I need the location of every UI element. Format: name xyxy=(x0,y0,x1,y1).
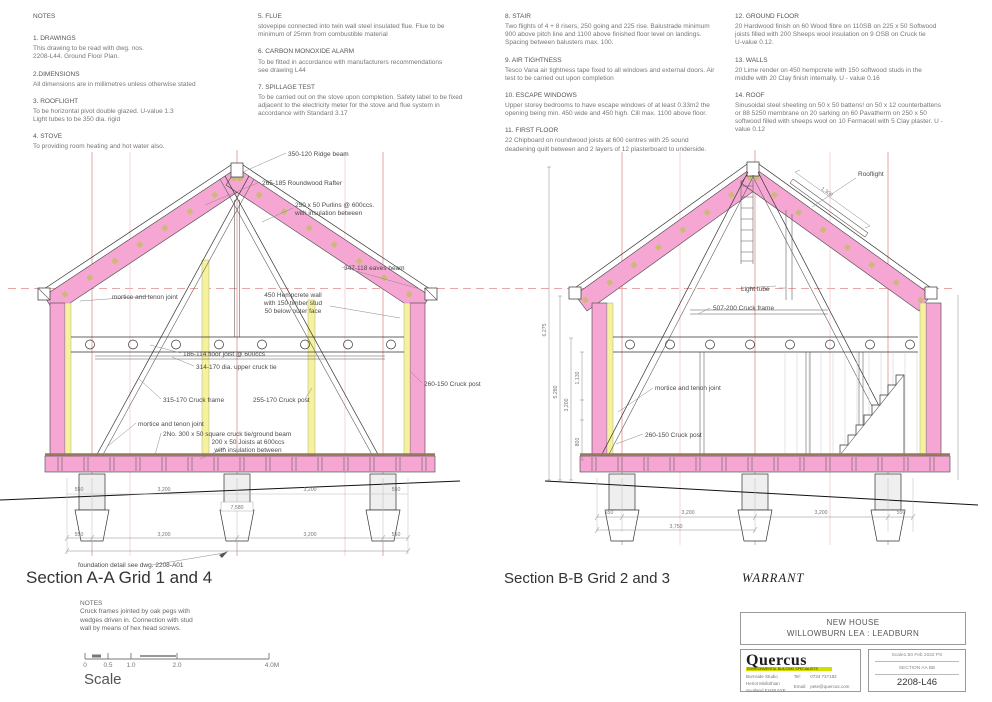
dim-a: 3,200 xyxy=(158,532,171,538)
wall-right-b xyxy=(926,303,941,465)
dim-a: 3,200 xyxy=(304,487,317,493)
roof-slope-right xyxy=(226,168,430,313)
drawing-number: 2208-L46 xyxy=(869,675,965,691)
roof-slope-left-b xyxy=(575,167,765,311)
roof-sheeting-right-b xyxy=(756,162,934,290)
ridge-beam-b xyxy=(747,162,759,176)
label-joists-1: 200 x 50 Joists at 600ccs xyxy=(212,439,286,446)
project-title-box: NEW HOUSE WILLOWBURN LEA : LEADBURN xyxy=(740,612,966,645)
label-joists-2: with insulation between xyxy=(213,447,282,454)
label-ridge-beam: 350-120 Ridge beam xyxy=(288,151,349,158)
section-a-title: Section A-A Grid 1 and 4 xyxy=(26,568,212,588)
vdim-b: 5,280 xyxy=(553,385,559,398)
label-purlins-2: with insulation between xyxy=(294,210,363,217)
label-hempcrete-3: 50 below outer face xyxy=(265,308,322,315)
dim-a: 550 xyxy=(75,487,84,493)
sections-drawing: 350-120 Ridge beam 265-185 Roundwood Raf… xyxy=(0,0,992,702)
project-name: NEW HOUSE xyxy=(827,618,880,629)
wall-left xyxy=(50,303,65,465)
drawing-info-box: Scale1:50 Feb 2022 PS SECTION AA BB 2208… xyxy=(868,649,966,692)
company-address: Burnside Studio Heriot Midlothian Scotla… xyxy=(746,674,786,694)
drawing-scale-date: Scale1:50 Feb 2022 PS xyxy=(869,650,965,661)
wall-stud-left-b xyxy=(607,303,613,465)
construction-notes-title: NOTES xyxy=(80,600,250,608)
label-floor-joist: 186-114 floor joist @ 600ccs xyxy=(183,351,266,358)
scale-tick: 0 xyxy=(83,662,87,669)
dim-b: 3,200 xyxy=(815,510,828,516)
warrant-stamp: WARRANT xyxy=(742,571,804,586)
dim-a: 3,200 xyxy=(158,487,171,493)
dim-a-mid: 7,580 xyxy=(231,505,244,511)
scale-tick: 2.0 xyxy=(172,662,181,669)
label-purlins-1: 250 x 50 Purlins @ 600ccs. xyxy=(295,202,374,209)
dim-a: 3,200 xyxy=(304,532,317,538)
project-address: WILLOWBURN LEA : LEADBURN xyxy=(787,629,919,640)
vdim-b: 3,200 xyxy=(564,398,570,411)
label-mortice-lower: mortice and tenon joint xyxy=(138,421,204,428)
ground-floor-a xyxy=(45,455,435,473)
company-contact: Tel:0734 737182 Email:pete@quercus.com xyxy=(794,674,850,694)
wall-right xyxy=(410,303,425,465)
dim-b: 3,200 xyxy=(682,510,695,516)
light-tube xyxy=(786,210,792,300)
wall-stud-right-b xyxy=(920,303,926,465)
construction-notes: NOTES Cruck frames jointed by oak pegs w… xyxy=(80,600,250,634)
eaves-beam-right-b xyxy=(925,287,937,299)
vdim-b: 1,130 xyxy=(575,371,581,384)
vdim-b: 800 xyxy=(575,438,581,447)
label-mortice-b: mortice and tenon joint xyxy=(655,385,721,392)
dim-a: 550 xyxy=(392,487,401,493)
label-upper-cruck-tie: 314-170 dia. upper cruck tie xyxy=(196,364,277,371)
label-cruck-post: 255-170 Cruck post xyxy=(253,397,310,404)
roof-sheeting-left-b xyxy=(572,162,750,290)
label-rafter: 265-185 Roundwood Rafter xyxy=(262,180,343,187)
label-cruck-frame: 315-170 Cruck frame xyxy=(163,397,224,404)
dim-rooflight: 1,300 xyxy=(820,186,834,199)
drawing-section-ref: SECTION AA BB xyxy=(875,661,959,674)
scale-tick: 0.5 xyxy=(103,662,112,669)
company-box: Quercus ENVIRONMENTAL BUILDING SPECIALIS… xyxy=(740,649,861,692)
dim-b: 550 xyxy=(897,510,906,516)
wall-stud-right xyxy=(404,303,410,465)
ground-floor-b xyxy=(580,455,950,473)
label-light-tube: Light tube xyxy=(741,286,770,293)
scale-tick: 1.0 xyxy=(126,662,135,669)
ridge-beam xyxy=(231,163,243,177)
label-ground-beam: 2No. 300 x 50 square cruck tie/ground be… xyxy=(163,431,291,438)
construction-notes-body: Cruck frames jointed by oak pegs with we… xyxy=(80,608,250,633)
label-rooflight: Rooflight xyxy=(858,171,884,178)
dim-a: 550 xyxy=(392,532,401,538)
dim-b-partial: 3,750 xyxy=(670,524,683,530)
label-cruck-frame-b: 507-200 Cruck frame xyxy=(713,305,774,312)
label-cruck-post-b: 260-150 Cruck post xyxy=(645,432,702,439)
roof-slope-left xyxy=(44,168,248,313)
section-b-title: Section B-B Grid 2 and 3 xyxy=(504,570,670,587)
scale-label: Scale xyxy=(84,671,122,688)
label-hempcrete-1: 450 Hempcrete wall xyxy=(264,292,322,299)
label-cruck-post-right: 260-150 Cruck post xyxy=(424,381,481,388)
label-hempcrete-2: with 150 timber stud xyxy=(263,300,323,307)
interior-stud-2 xyxy=(308,300,315,456)
company-tagline: ENVIRONMENTAL BUILDING SPECIALISTS xyxy=(746,667,832,671)
scale-bar: 0 0.5 1.0 2.0 4.0M Scale xyxy=(83,653,279,688)
vdim-b: 6,275 xyxy=(542,323,548,336)
drawing-sheet: NOTES 1. DRAWINGS This drawing to be rea… xyxy=(0,0,992,702)
section-b-drawing: Rooflight 1,300 Light tube 507-200 Cruck… xyxy=(542,150,978,545)
label-eaves-beam: 347-118 eaves beam xyxy=(344,265,405,272)
eaves-beam-left-b xyxy=(569,287,581,299)
scale-tick: 4.0M xyxy=(265,662,279,669)
dim-b: 550 xyxy=(605,510,614,516)
wall-left-b xyxy=(592,303,607,465)
wall-stud-left xyxy=(65,303,71,465)
company-logo: Quercus xyxy=(746,653,855,668)
cruck-blades xyxy=(95,176,380,460)
label-mortice-upper: mortice and tenon joint xyxy=(112,294,178,301)
section-a-drawing: 350-120 Ridge beam 265-185 Roundwood Raf… xyxy=(0,150,481,569)
dim-a: 550 xyxy=(75,532,84,538)
